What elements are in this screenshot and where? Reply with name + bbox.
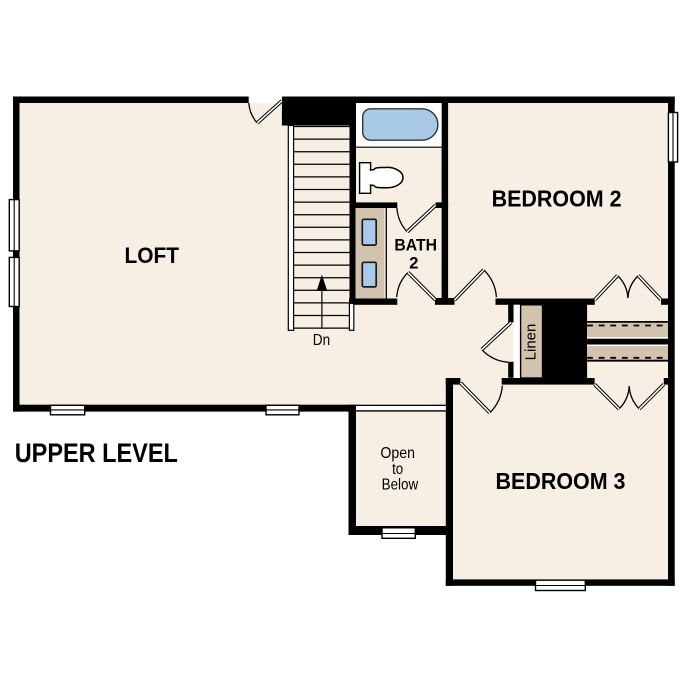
svg-text:BATH: BATH	[394, 236, 437, 254]
svg-text:BEDROOM 3: BEDROOM 3	[496, 468, 626, 494]
svg-text:Dn: Dn	[313, 332, 330, 349]
svg-text:2: 2	[409, 255, 418, 273]
svg-text:Linen: Linen	[522, 324, 539, 361]
svg-text:LOFT: LOFT	[125, 243, 180, 268]
svg-text:BEDROOM 2: BEDROOM 2	[492, 185, 622, 211]
svg-text:UPPER LEVEL: UPPER LEVEL	[15, 438, 178, 468]
